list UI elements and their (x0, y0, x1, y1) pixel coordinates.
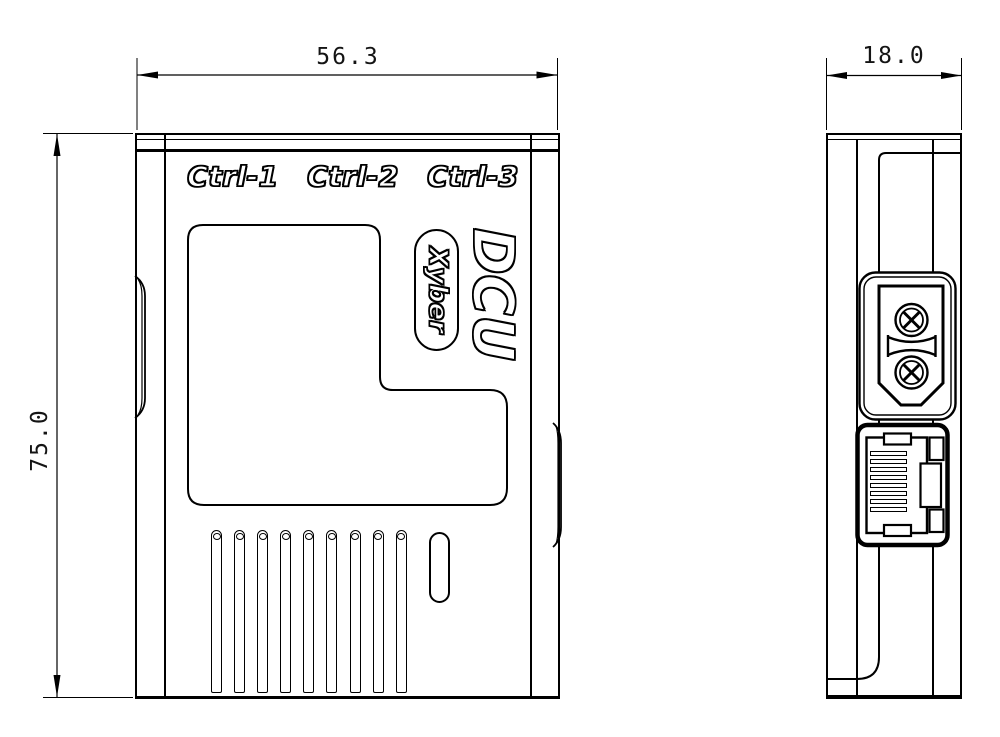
dimension-height-value: 75.0 (27, 400, 53, 480)
rj45-pin (870, 451, 907, 456)
vent (257, 530, 268, 693)
rj45-pin (870, 459, 907, 464)
model-label: DCU (458, 228, 524, 358)
rj45-pin (870, 483, 907, 488)
rj45-pin (870, 491, 907, 496)
technical-drawing-canvas: Ctrl-1 Ctrl-2 Ctrl-3 Xyber DCU (0, 0, 1000, 737)
front-view-left-edge-line (164, 134, 166, 697)
vent-slots (211, 530, 407, 693)
rj45-pin (870, 507, 907, 512)
rj45-pin (870, 467, 907, 472)
vent (211, 530, 222, 693)
side-view-body-outline (826, 133, 962, 699)
vent (234, 530, 245, 693)
side-view-lid-seam-line (827, 139, 961, 140)
side-view-inner-left-line (856, 140, 858, 697)
front-view-right-edge-line (530, 134, 532, 697)
dimension-width-value: 56.3 (298, 44, 398, 70)
front-view-lid-seam-line (136, 139, 559, 140)
rj45-pin (870, 475, 907, 480)
vent (280, 530, 291, 693)
rj45-contact-pins (870, 451, 907, 512)
brand-label: Xyber (419, 235, 455, 346)
vent (396, 530, 407, 693)
port-label-ctrl-1: Ctrl-1 (183, 160, 283, 193)
front-view-lid-band-line (136, 149, 559, 152)
vent (303, 530, 314, 693)
port-label-ctrl-3: Ctrl-3 (423, 160, 523, 193)
vent (373, 530, 384, 693)
dimension-height (43, 134, 133, 698)
vent (350, 530, 361, 693)
reset-slot (429, 532, 450, 603)
port-label-ctrl-2: Ctrl-2 (303, 160, 403, 193)
dimension-depth-value: 18.0 (844, 43, 944, 69)
side-view-inner-right-line (932, 140, 934, 697)
vent (326, 530, 337, 693)
rj45-pin (870, 499, 907, 504)
